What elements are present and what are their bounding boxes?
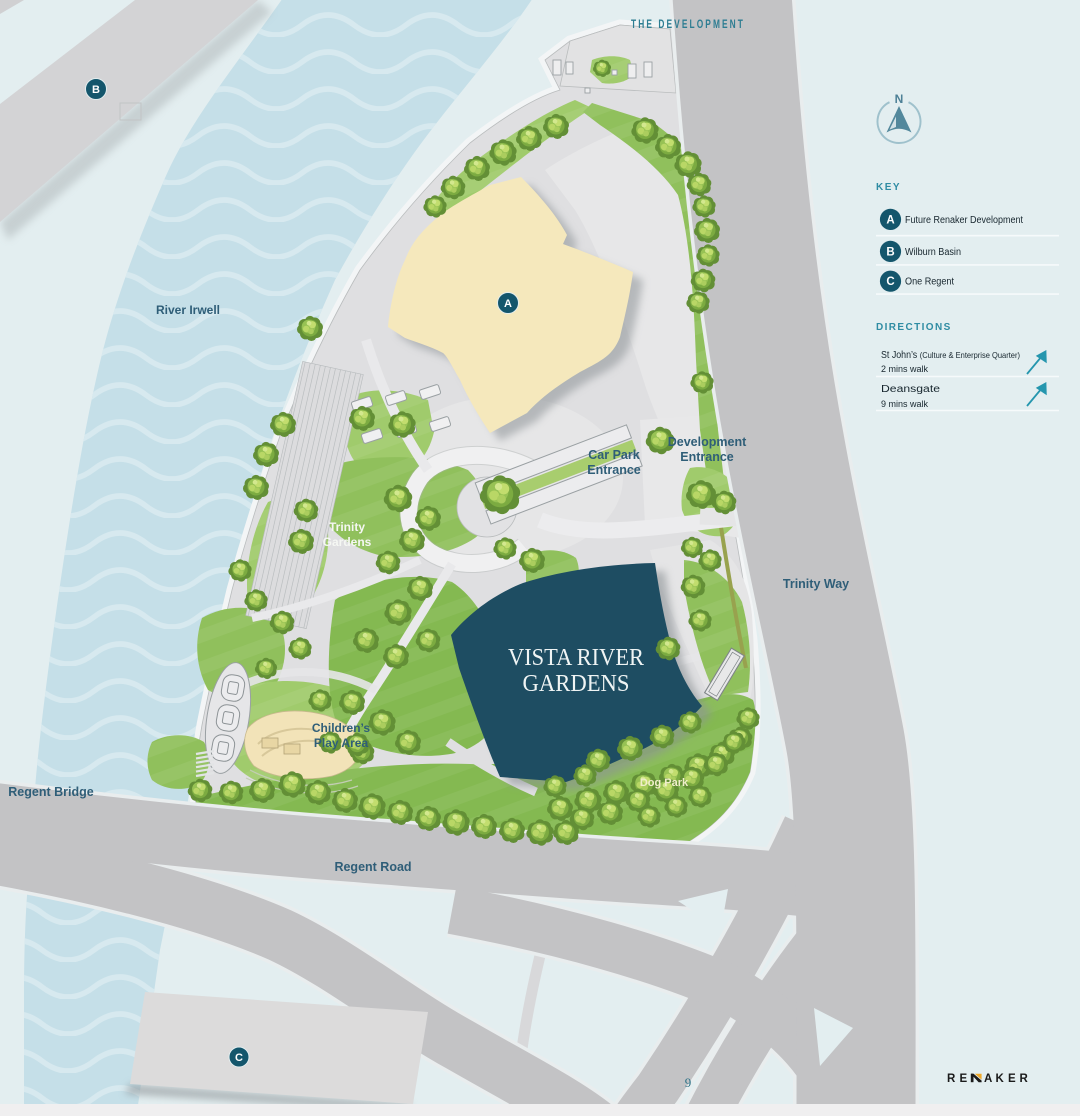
svg-text:Deansgate: Deansgate <box>881 384 941 395</box>
svg-text:One Regent: One Regent <box>905 277 954 288</box>
svg-text:Future Renaker Development: Future Renaker Development <box>905 215 1023 226</box>
svg-text:VISTA RIVER: VISTA RIVER <box>508 645 644 671</box>
svg-text:2 mins walk: 2 mins walk <box>881 364 929 374</box>
svg-text:B: B <box>886 246 894 258</box>
svg-text:Trinity Way: Trinity Way <box>783 577 849 591</box>
svg-text:Children’s: Children’s <box>312 721 371 735</box>
svg-text:Development: Development <box>668 435 747 449</box>
svg-text:9: 9 <box>685 1075 692 1090</box>
svg-text:Gardens: Gardens <box>323 535 372 549</box>
svg-text:Regent Road: Regent Road <box>334 860 411 874</box>
svg-text:C: C <box>886 276 894 288</box>
svg-text:A: A <box>984 1073 992 1085</box>
svg-text:R: R <box>1020 1073 1029 1085</box>
svg-text:Entrance: Entrance <box>587 463 641 477</box>
svg-text:Trinity: Trinity <box>329 520 365 534</box>
svg-text:St John’s (Culture & Enterpris: St John’s (Culture & Enterprise Quarter) <box>881 350 1020 361</box>
svg-text:Car Park: Car Park <box>588 448 639 462</box>
svg-text:R: R <box>947 1073 956 1085</box>
svg-text:GARDENS: GARDENS <box>523 671 630 697</box>
svg-text:THE DEVELOPMENT: THE DEVELOPMENT <box>631 17 745 31</box>
svg-text:KEY: KEY <box>876 182 901 193</box>
svg-text:A: A <box>504 298 512 310</box>
svg-text:DIRECTIONS: DIRECTIONS <box>876 322 952 333</box>
svg-text:Regent Bridge: Regent Bridge <box>8 785 93 799</box>
svg-text:River Irwell: River Irwell <box>156 303 220 317</box>
svg-text:Dog Park: Dog Park <box>640 777 689 789</box>
svg-text:K: K <box>996 1073 1005 1085</box>
svg-text:A: A <box>886 214 894 226</box>
svg-text:C: C <box>235 1052 243 1064</box>
svg-text:Wilburn Basin: Wilburn Basin <box>905 247 961 258</box>
svg-text:E: E <box>1008 1073 1016 1085</box>
svg-text:N: N <box>895 92 904 106</box>
svg-text:Entrance: Entrance <box>680 450 734 464</box>
svg-text:B: B <box>92 84 100 96</box>
svg-text:E: E <box>960 1073 968 1085</box>
svg-text:9 mins walk: 9 mins walk <box>881 399 929 409</box>
svg-text:Play Area: Play Area <box>314 736 369 750</box>
